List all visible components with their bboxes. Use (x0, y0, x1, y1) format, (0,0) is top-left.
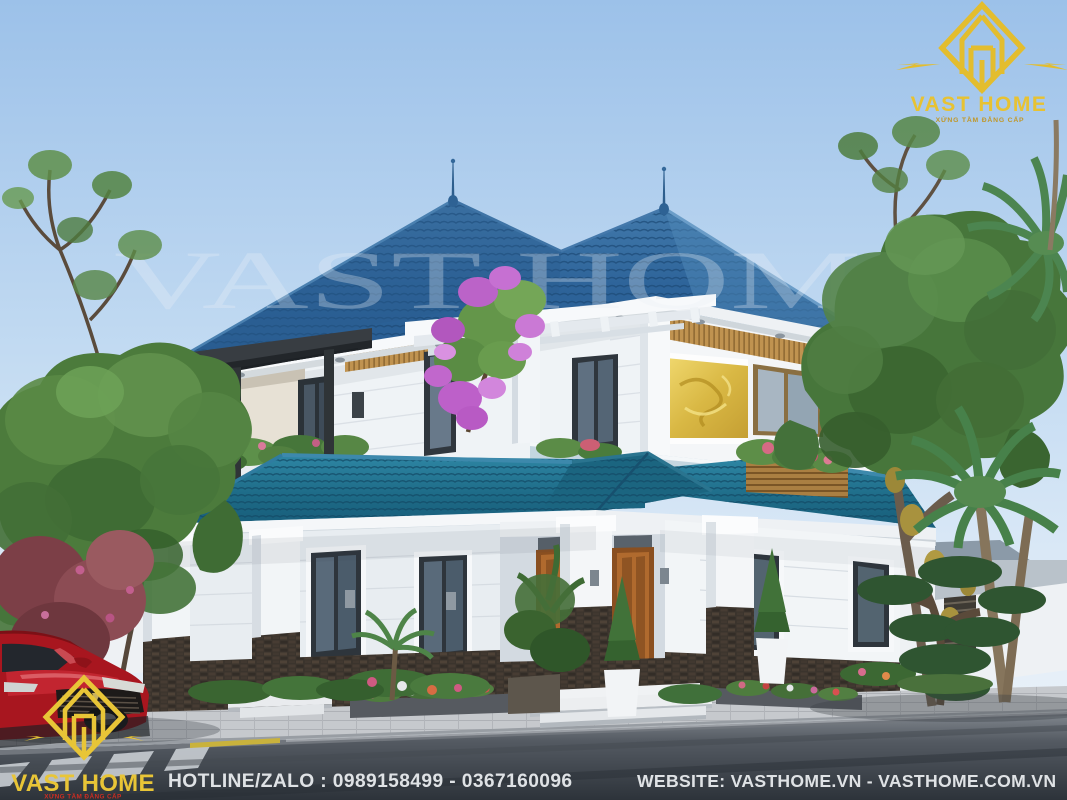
svg-text:VAST HOME: VAST HOME (911, 93, 1048, 116)
svg-text:HOTLINE/ZALO : 0989158499 - 03: HOTLINE/ZALO : 0989158499 - 0367160096 (168, 771, 573, 792)
svg-text:WEBSITE: VASTHOME.VN - VASTHO: WEBSITE: VASTHOME.VN - VASTHOME.COM.VN (637, 771, 1056, 791)
